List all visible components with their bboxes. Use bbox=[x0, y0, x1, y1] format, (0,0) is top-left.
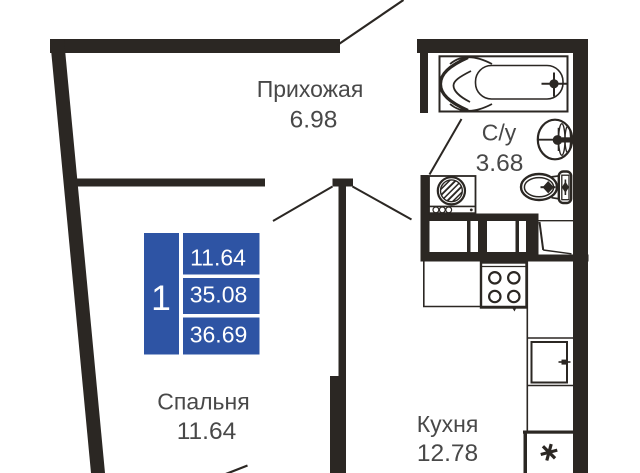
svg-text:35.08: 35.08 bbox=[190, 282, 248, 308]
svg-text:11.64: 11.64 bbox=[177, 418, 237, 445]
svg-text:1: 1 bbox=[151, 278, 171, 318]
svg-text:С/у: С/у bbox=[482, 120, 517, 146]
svg-text:12.78: 12.78 bbox=[417, 440, 478, 467]
svg-text:36.69: 36.69 bbox=[190, 322, 248, 348]
svg-text:6.98: 6.98 bbox=[290, 107, 338, 134]
svg-text:Спальня: Спальня bbox=[157, 389, 249, 415]
svg-text:3.68: 3.68 bbox=[476, 150, 524, 177]
svg-text:Кухня: Кухня bbox=[417, 411, 479, 437]
svg-text:11.64: 11.64 bbox=[190, 245, 246, 271]
svg-text:Прихожая: Прихожая bbox=[257, 76, 364, 102]
